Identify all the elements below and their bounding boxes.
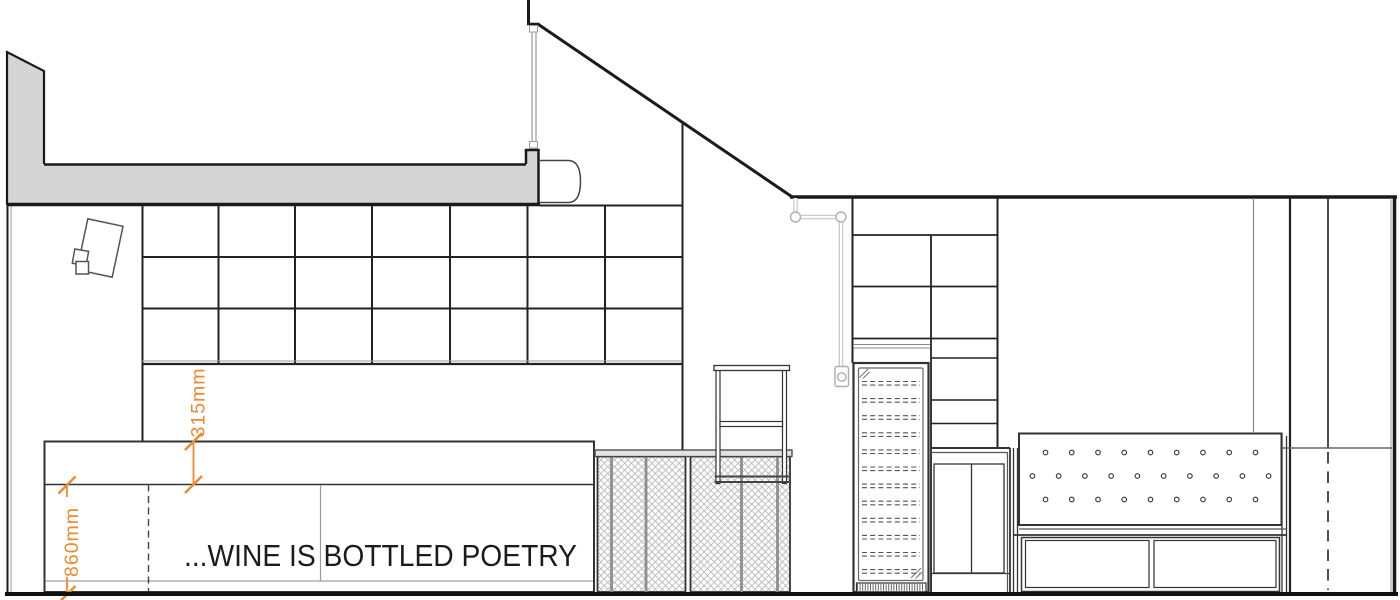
base-cabinet — [931, 448, 1010, 592]
banquette — [1013, 434, 1287, 593]
hanger-rod — [530, 26, 538, 149]
tilted-wall-frame — [72, 219, 123, 277]
dimension-315-label: 315mm — [188, 367, 210, 437]
mesh-top-rail — [595, 450, 792, 457]
banquette-backrest — [1019, 434, 1282, 526]
banquette-base — [1022, 538, 1280, 592]
dimension-860-label: 860mm — [61, 507, 83, 577]
wine-fridge — [854, 363, 929, 592]
conduit-pipe — [791, 198, 849, 387]
elevation-drawing: ...WINE IS BOTTLED POETRY 315mm 860mm — [0, 0, 1400, 600]
right-panel-section — [1254, 198, 1393, 592]
counter-quote-text: ...WINE IS BOTTLED POETRY — [184, 539, 577, 573]
bulkhead-beam — [7, 52, 540, 205]
elevation-svg: ...WINE IS BOTTLED POETRY 315mm 860mm — [0, 0, 1400, 600]
rolled-blind — [540, 161, 581, 203]
bar-counter: ...WINE IS BOTTLED POETRY — [44, 442, 594, 593]
mesh-screens — [595, 450, 792, 592]
